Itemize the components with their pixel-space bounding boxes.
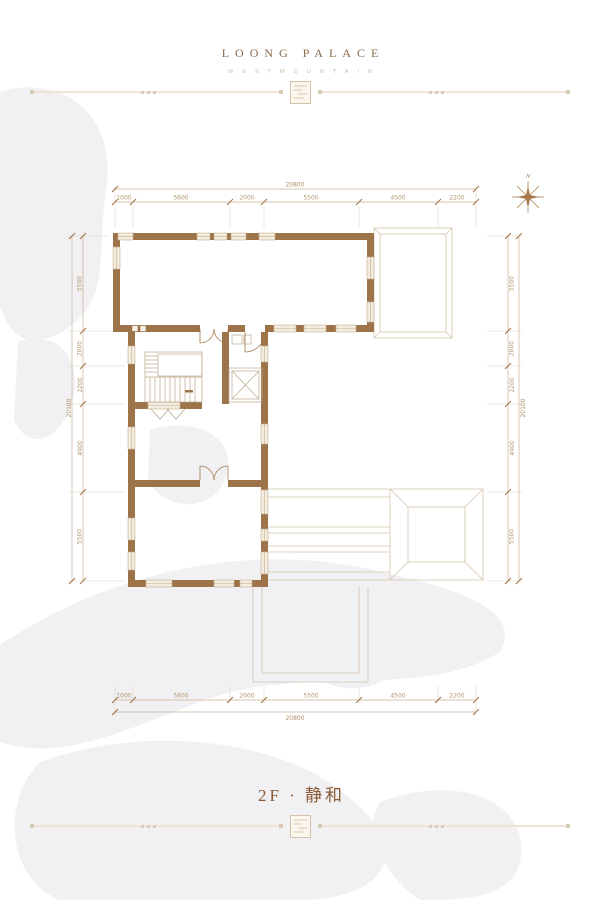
dim-bottom-seg: 2000 (239, 693, 254, 700)
dim-top-seg: 2200 (449, 195, 464, 202)
dim-right-total: 20100 (520, 398, 527, 417)
double-door-great-room (200, 329, 214, 343)
dim-left-seg: 5500 (77, 276, 84, 291)
compass-north-label: N (525, 173, 531, 180)
dim-bottom-seg: 5600 (173, 693, 188, 700)
dim-left-seg: 2200 (77, 377, 84, 392)
dim-right-seg: 2200 (509, 377, 516, 392)
roof-bottom-extension (253, 587, 368, 682)
closet-fixtures (232, 335, 251, 344)
roof-top-right (374, 228, 452, 338)
double-door-lower-room (214, 466, 228, 480)
dim-left-total: 20100 (66, 398, 73, 417)
bay-window (151, 409, 185, 419)
dim-right-seg: 5500 (509, 276, 516, 291)
elevator-shaft (229, 368, 262, 402)
floor-plan: 20800 1000 5600 2000 5500 4500 2200 1000… (0, 0, 600, 900)
dim-bottom-seg: 1000 (116, 693, 131, 700)
stair-direction-mark (185, 390, 193, 393)
dim-top-total: 20800 (285, 182, 304, 189)
dim-top-seg: 4500 (390, 195, 405, 202)
dim-left-seg: 4900 (77, 440, 84, 455)
dim-bottom-total: 20800 (285, 715, 304, 722)
dim-ticks (69, 186, 522, 715)
double-door-lower-room (200, 466, 214, 480)
staircase (145, 352, 202, 402)
dim-bottom-seg: 5500 (303, 693, 318, 700)
dim-top-seg: 2000 (239, 195, 254, 202)
dim-extension-lines (68, 186, 522, 715)
roof-bottom-right (268, 489, 483, 580)
dim-right-seg: 4900 (509, 440, 516, 455)
dim-top-seg: 5600 (173, 195, 188, 202)
dim-right-seg: 2000 (509, 341, 516, 356)
dim-bottom-seg: 2200 (449, 693, 464, 700)
dim-labels: 20800 1000 5600 2000 5500 4500 2200 1000… (66, 182, 527, 723)
dim-top-seg: 1000 (116, 195, 131, 202)
dim-top-seg: 5500 (303, 195, 318, 202)
page: LOONG PALACE WESTMOUNTAIN (0, 0, 600, 900)
dim-left-seg: 2000 (77, 341, 84, 356)
dim-left-seg: 5500 (77, 529, 84, 544)
dim-right-seg: 5500 (509, 529, 516, 544)
window-midlines (117, 237, 371, 584)
doors (200, 329, 265, 480)
compass-rose: N (512, 173, 544, 213)
dim-bottom-seg: 4500 (390, 693, 405, 700)
